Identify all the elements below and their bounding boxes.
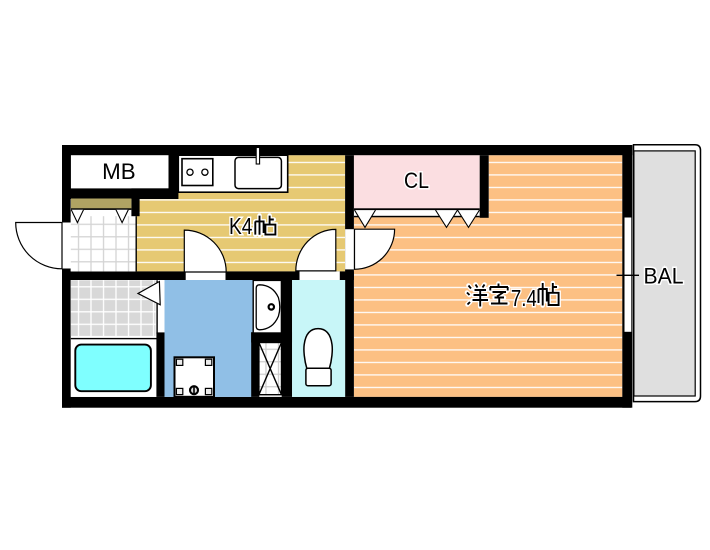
- svg-text:CL: CL: [404, 168, 429, 193]
- svg-text:BAL: BAL: [644, 263, 684, 288]
- svg-text:K4: K4: [229, 213, 253, 239]
- svg-text:7.4: 7.4: [511, 285, 537, 311]
- svg-text:MB: MB: [102, 159, 136, 184]
